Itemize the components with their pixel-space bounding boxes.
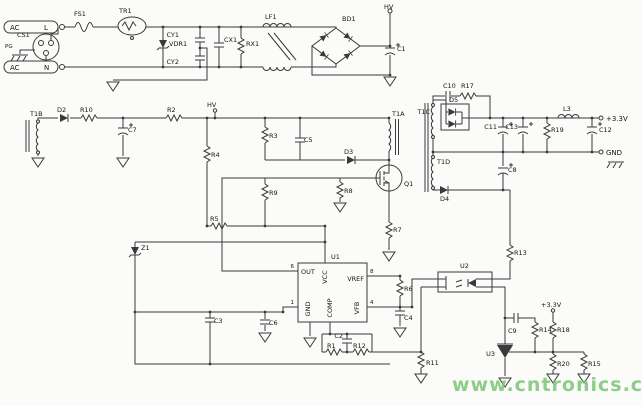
label-ac1-pin: L (44, 24, 48, 32)
ground-cy (107, 82, 119, 91)
capacitor-c2 (342, 339, 352, 343)
resistor-r8 (337, 182, 343, 198)
dual-diode-d5 (441, 104, 469, 130)
label-c13: C13 (505, 123, 518, 131)
label-r13: R13 (514, 249, 527, 257)
label-cy2: CY2 (166, 58, 179, 66)
label-pg: PG (5, 44, 13, 50)
capacitor-c9 (514, 313, 518, 323)
hv-mid-terminal (213, 109, 216, 112)
label-hv-mid: HV (207, 101, 217, 109)
schematic-page: AC L AC N CS1 PG FS1 TR1 VDR1 CY1 CY2 CX… (0, 0, 643, 406)
resistor-r19 (544, 123, 550, 139)
label-r3: R3 (269, 132, 278, 140)
label-t1c: T1C (416, 108, 430, 116)
resistor-r20 (550, 354, 556, 370)
mosfet-q1 (375, 165, 402, 192)
inductor-l3 (558, 115, 579, 119)
label-lf1: LF1 (265, 13, 277, 21)
schematic-canvas: AC L AC N CS1 PG FS1 TR1 VDR1 CY1 CY2 CX… (0, 0, 643, 406)
label-r5: R5 (210, 215, 219, 223)
label-r19: R19 (551, 126, 564, 134)
label-pin-comp: COMP (326, 298, 334, 317)
label-fs1: FS1 (74, 10, 86, 18)
label-pin6: 6 (291, 264, 295, 270)
label-t1d: T1D (436, 158, 450, 166)
label-r12: R12 (353, 342, 366, 350)
wires-controller (310, 190, 510, 374)
label-l3: L3 (563, 105, 571, 113)
label-pin-vref: VREF (347, 275, 364, 283)
label-r15: R15 (588, 360, 601, 368)
label-r10: R10 (80, 106, 93, 114)
watermark-text: www.cntronics.com (452, 374, 643, 396)
label-cy1: CY1 (166, 31, 179, 39)
label-r18: R18 (557, 326, 570, 334)
label-c11: C11 (484, 123, 497, 131)
label-ac2-pin: N (44, 64, 49, 72)
label-r17: R17 (461, 82, 474, 90)
rail-33v-terminal (551, 309, 554, 312)
label-output-gnd: GND (606, 149, 622, 157)
label-r11: R11 (426, 359, 439, 367)
label-ac2: AC (10, 64, 20, 72)
label-r4: R4 (211, 151, 220, 159)
label-u2: U2 (460, 262, 469, 270)
ground-c1 (384, 77, 396, 86)
diode-d3 (347, 156, 355, 164)
bridge-bd1 (312, 28, 360, 64)
label-c12: C12 (599, 126, 612, 134)
label-u3: U3 (486, 350, 495, 358)
diode-d4 (440, 186, 448, 194)
zener-z1 (129, 247, 141, 257)
label-c3: C3 (214, 317, 223, 325)
capacitor-c13 (518, 122, 533, 134)
label-cs1: CS1 (17, 31, 30, 39)
label-r1: R1 (327, 342, 336, 350)
label-pin-out: OUT (301, 268, 315, 276)
label-r9: R9 (269, 189, 278, 197)
label-rail-33v: +3.3V (541, 301, 562, 309)
label-c1: C1 (397, 45, 406, 53)
label-hv-top: HV (384, 3, 394, 11)
label-d5: D5 (449, 96, 458, 104)
ground-r7 (383, 252, 395, 261)
label-c5: C5 (304, 136, 313, 144)
thermistor-tr1 (118, 17, 146, 40)
label-vdr1: VDR1 (169, 40, 187, 48)
label-q1: Q1 (404, 180, 413, 188)
label-tr1: TR1 (118, 7, 132, 15)
resistor-r4 (204, 146, 210, 162)
resistor-r6 (397, 280, 403, 296)
label-rx1: RX1 (246, 40, 259, 48)
label-c6: C6 (269, 319, 278, 327)
ground-r8 (334, 203, 346, 212)
choke-lf1 (263, 24, 296, 71)
wires-ac-input (20, 13, 390, 80)
resistor-r15 (581, 354, 587, 370)
label-t1b: T1B (29, 110, 43, 118)
ground-c4 (394, 328, 406, 337)
shunt-regulator-u3 (497, 344, 513, 358)
label-c2: C2 (334, 332, 343, 340)
label-cx1: CX1 (224, 36, 237, 44)
label-c9: C9 (508, 327, 517, 335)
label-r8: R8 (344, 187, 353, 195)
label-bd1: BD1 (342, 15, 356, 23)
label-pin4: 4 (370, 300, 374, 306)
label-r2: R2 (167, 106, 176, 114)
capacitor-cy1 (195, 38, 205, 42)
label-c7: C7 (128, 126, 137, 134)
ground-c7 (117, 158, 129, 167)
label-r6: R6 (404, 285, 413, 293)
label-r14: R14 (539, 326, 552, 334)
label-z1: Z1 (141, 244, 150, 252)
label-pin1: 1 (291, 300, 295, 306)
resistor-r13 (507, 245, 513, 261)
output-gnd-terminal (599, 150, 603, 154)
ground-u1 (304, 338, 316, 347)
transformer-t1a (389, 119, 399, 155)
ground-t1b (32, 158, 44, 167)
label-d2: D2 (57, 106, 66, 114)
label-d4: D4 (440, 195, 449, 203)
label-pin-gnd: GND (304, 302, 312, 317)
resistor-r9 (262, 184, 268, 200)
varistor-vdr1 (157, 40, 169, 50)
resistor-r17 (460, 93, 476, 99)
fuse-squiggle (75, 23, 93, 32)
transformer-t1b (26, 120, 40, 154)
label-pin-vfb: VFB (353, 302, 361, 315)
resistor-r2 (166, 115, 182, 121)
wires-aux-and-primary (38, 112, 390, 364)
resistor-r3 (262, 127, 268, 143)
optocoupler-u2 (438, 272, 492, 292)
output-33v-terminal (599, 116, 603, 120)
label-t1a: T1A (391, 110, 405, 118)
ground-r11 (415, 374, 427, 383)
label-c8: C8 (508, 166, 517, 174)
label-d3: D3 (344, 148, 353, 156)
capacitor-cx1 (214, 43, 224, 47)
label-pin-vcc: VCC (321, 270, 329, 284)
label-u1: U1 (331, 253, 340, 261)
resistor-rx1 (238, 38, 244, 54)
resistor-r14 (532, 322, 538, 338)
earth-ground-output (607, 162, 624, 168)
label-r20: R20 (557, 360, 570, 368)
label-c10: C10 (443, 82, 456, 90)
label-pin8: 8 (370, 269, 374, 275)
resistor-r10 (81, 115, 97, 121)
ground-c6 (259, 333, 271, 342)
earth-ground-pg (11, 55, 28, 61)
label-r7: R7 (393, 226, 402, 234)
resistor-r11 (418, 352, 424, 368)
resistor-r7 (386, 222, 392, 238)
diode-d2 (60, 114, 68, 122)
capacitor-cy2 (195, 56, 205, 60)
label-output-33v: +3.3V (606, 115, 628, 123)
resistor-r5 (211, 223, 227, 229)
label-c4: C4 (404, 314, 413, 322)
